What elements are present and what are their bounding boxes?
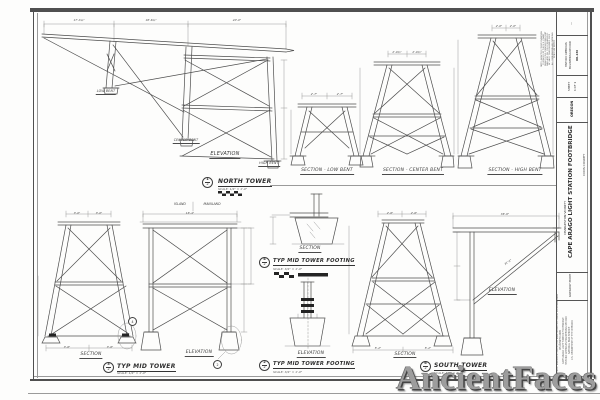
dim-mid-top-1: 3'-0" bbox=[96, 211, 103, 215]
section-high-bent-drawing bbox=[458, 22, 554, 172]
title-block-divider bbox=[557, 75, 589, 76]
low-bent-label: LOW BENT bbox=[96, 89, 116, 95]
center-bent-label: CENTER BENT bbox=[173, 138, 200, 144]
record-number: OR-136 bbox=[576, 37, 579, 73]
north-tower-scale-bar bbox=[218, 191, 246, 197]
title-block-divider bbox=[557, 122, 589, 123]
high-bent-label: HIGH BENT bbox=[258, 161, 280, 167]
sheet-border-right-inner bbox=[587, 12, 588, 379]
footing-callout-circle: 4 bbox=[128, 317, 137, 326]
typ-mid-tower-section-drawing bbox=[36, 206, 141, 358]
south-tower-elevation-label: ELEVATION bbox=[488, 288, 517, 295]
dim-high-1: 2'-0" bbox=[510, 24, 517, 28]
north-tower-elevation-drawing bbox=[38, 16, 298, 198]
footing-elevation-title: TYP MID TOWER FOOTING bbox=[273, 361, 355, 369]
dim-center-0: 2'-0¾" bbox=[392, 50, 401, 54]
dim-high-0: 2'-0" bbox=[496, 24, 503, 28]
mainland-label: MAINLAND bbox=[203, 202, 220, 206]
footing-section-label: SECTION bbox=[298, 246, 321, 253]
sheet-border-left bbox=[33, 10, 34, 381]
typ-mid-tower-elevation-drawing bbox=[140, 200, 262, 358]
footing-elevation-label: ELEVATION bbox=[297, 351, 326, 358]
dim-mid-elev-0: 16'-4" bbox=[186, 211, 194, 215]
typ-mid-tower-footing-elevation-drawing bbox=[280, 278, 350, 352]
marker-sheet: 2 bbox=[263, 366, 265, 370]
south-tower-section-drawing bbox=[348, 208, 458, 356]
south-tower-elevation-drawing bbox=[450, 208, 564, 358]
state-name: OREGON bbox=[571, 98, 574, 120]
section-center-bent-label: SECTION - CENTER BENT bbox=[382, 168, 444, 175]
county-name: COOS COUNTY bbox=[583, 135, 586, 195]
dim-north-2: 20'-0" bbox=[233, 18, 241, 22]
footing-callout-circle: 2 bbox=[213, 360, 222, 369]
north-tower-scale: SCALE: 1/4" = 1'-0" bbox=[218, 187, 247, 191]
north-tower-title: NORTH TOWER bbox=[218, 178, 272, 187]
typ-mid-tower-footing-section-drawing bbox=[262, 192, 357, 254]
record-name-line1: HISTORIC AMERICAN bbox=[566, 37, 568, 73]
footing-elevation-detail-marker: 2 2 bbox=[259, 360, 270, 371]
title-block-divider bbox=[557, 300, 589, 301]
dim-center-1: 2'-0¾" bbox=[412, 50, 421, 54]
callout-number: 2 bbox=[216, 363, 218, 367]
north-tower-elevation-label: ELEVATION bbox=[209, 151, 240, 159]
north-tower-detail-marker: 1 2 bbox=[202, 177, 213, 188]
footing-scale-bar bbox=[274, 272, 330, 279]
dim-mid-top-0: 3'-0" bbox=[74, 211, 81, 215]
sheet-word: SHEET bbox=[568, 77, 571, 95]
footing-section-scale: SCALE: 3/4" = 1'-0" bbox=[273, 267, 302, 271]
footing-section-title: TYP MID TOWER FOOTING bbox=[273, 258, 355, 266]
island-label: ISLAND bbox=[174, 202, 186, 206]
dim-low-0: 2'-7" bbox=[311, 92, 318, 96]
dim-north-0: 17'-3¼" bbox=[73, 18, 84, 22]
footing-elevation-scale: SCALE: 3/4" = 1'-0" bbox=[273, 370, 302, 374]
footing-section-detail-marker: 4 2 bbox=[259, 257, 270, 268]
mid-tower-elevation-label: ELEVATION bbox=[185, 350, 214, 357]
section-high-bent-label: SECTION - HIGH BENT bbox=[487, 168, 542, 175]
section-center-bent-drawing bbox=[360, 48, 455, 172]
callout-number: 4 bbox=[131, 320, 133, 324]
title-block-dash: — bbox=[570, 16, 573, 32]
typ-mid-tower-scale: SCALE: 1/4" = 1'-0" bbox=[117, 371, 146, 375]
typ-mid-tower-detail-marker: 3 2 bbox=[103, 362, 114, 373]
dim-south-elev-0: 36'-6" bbox=[501, 212, 509, 216]
mid-tower-section-label: SECTION bbox=[79, 352, 102, 359]
marker-sheet: 2 bbox=[107, 368, 109, 372]
sheet-border-top bbox=[30, 8, 594, 12]
south-tower-section-label: SECTION bbox=[393, 352, 416, 359]
dim-south-top-1: 2'-6" bbox=[411, 211, 418, 215]
sheet-number: 1 OF 1 bbox=[574, 77, 577, 95]
dim-mid-bottom-0: 3'-6" bbox=[64, 345, 71, 349]
marker-sheet: 2 bbox=[263, 263, 265, 267]
sheet-border-right bbox=[590, 8, 592, 381]
ancientfaces-watermark: AncientFaces bbox=[396, 360, 597, 398]
marker-sheet: 2 bbox=[206, 183, 208, 187]
vicinity-name: CHARLESTON VICINITY bbox=[564, 196, 567, 240]
dim-low-1: 2'-7" bbox=[337, 92, 344, 96]
drawing-sheet: LOW BENT CENTER BENT HIGH BENT ELEVATION… bbox=[0, 0, 600, 400]
dim-north-1: 18'-6¾" bbox=[145, 18, 156, 22]
title-block-divider bbox=[557, 35, 589, 36]
dim-south-bottom-0: 5'-2" bbox=[375, 346, 382, 350]
row-divider-line bbox=[270, 185, 556, 186]
locale-name: GREGORY POINT bbox=[569, 272, 572, 299]
dim-mid-bottom-1: 3'-6" bbox=[107, 345, 114, 349]
section-low-bent-drawing bbox=[290, 90, 365, 172]
dim-south-top-0: 2'-6" bbox=[387, 211, 394, 215]
record-name-line2: ENGINEERING RECORD bbox=[570, 37, 572, 73]
dim-south-bottom-1: 5'-2" bbox=[425, 346, 432, 350]
section-low-bent-label: SECTION - LOW BENT bbox=[300, 168, 354, 175]
title-block-divider bbox=[557, 272, 589, 273]
project-title: CAPE ARAGO LIGHT STATION FOOTBRIDGE bbox=[569, 140, 575, 258]
